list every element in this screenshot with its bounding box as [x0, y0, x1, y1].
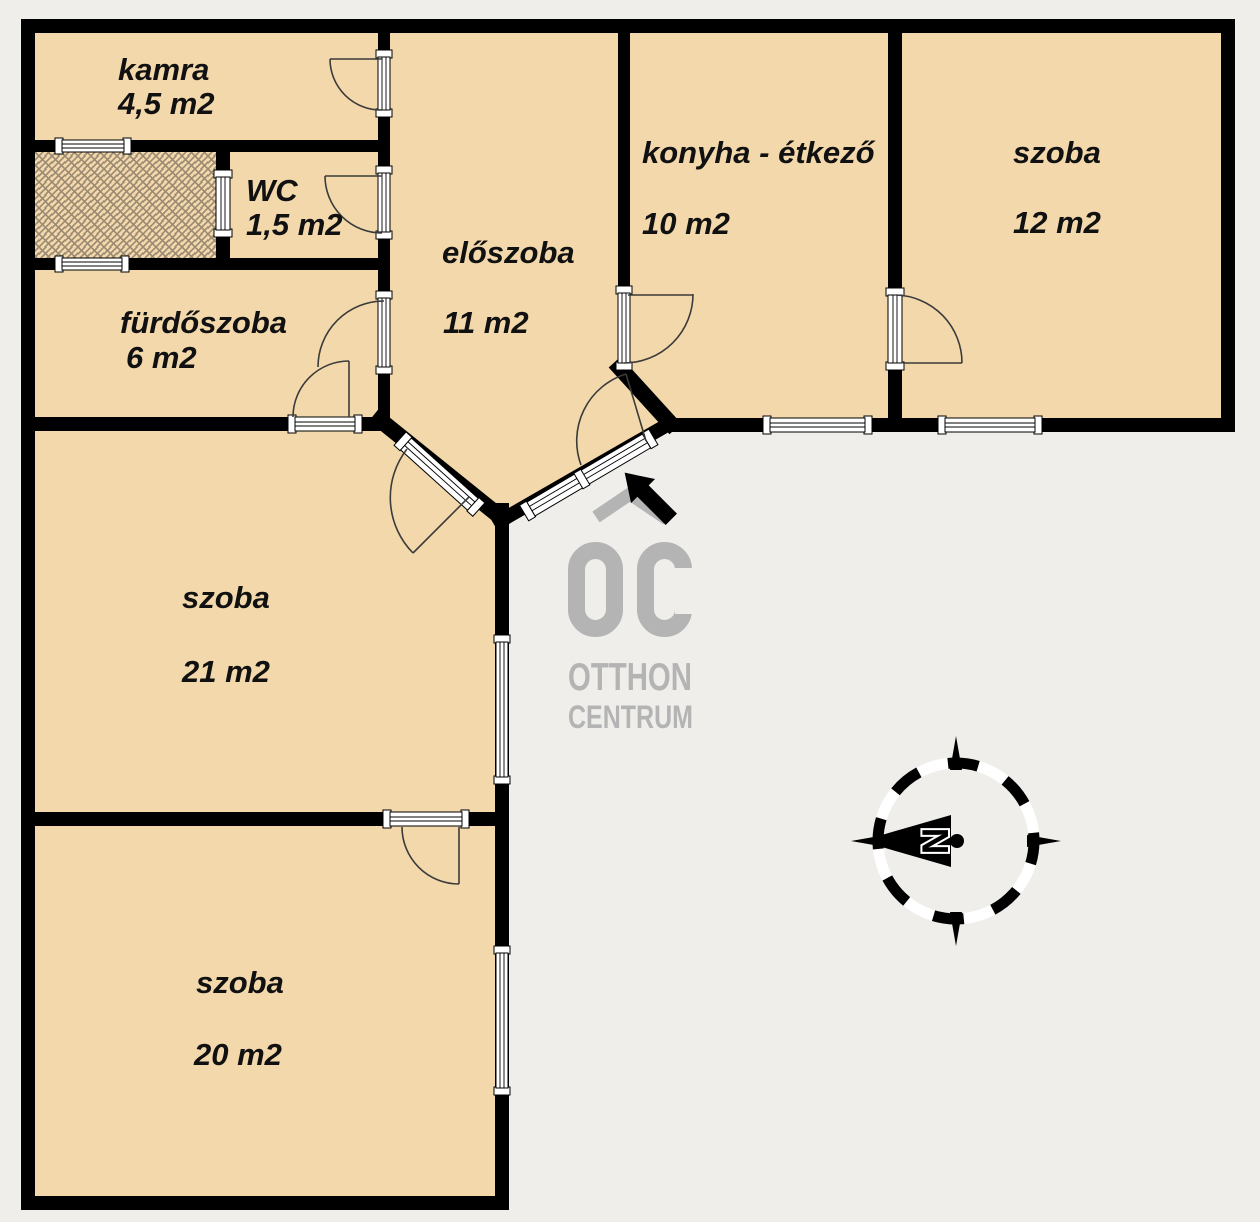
- area-szoba21: 21 m2: [181, 654, 270, 689]
- area-kamra: 4,5 m2: [117, 86, 215, 121]
- logo-word-centrum: CENTRUM: [568, 699, 693, 735]
- area-eloszoba: 11 m2: [443, 305, 529, 340]
- szoba21-window: [494, 635, 510, 784]
- label-konyha: konyha - étkező: [642, 135, 876, 170]
- kamra-door-jamb: [376, 50, 392, 117]
- logo-word-otthon: OTTHON: [568, 656, 692, 699]
- left-band-floor: [35, 418, 495, 1196]
- area-szoba12: 12 m2: [1013, 205, 1101, 240]
- szoba12-window: [938, 416, 1042, 434]
- wc-shaft-window: [214, 170, 232, 237]
- furdoszoba-door-jamb: [376, 291, 392, 374]
- area-konyha: 10 m2: [642, 206, 730, 241]
- label-szoba12: szoba: [1013, 135, 1101, 170]
- szoba20-window: [494, 946, 510, 1095]
- label-kamra: kamra: [118, 52, 209, 87]
- area-wc: 1,5 m2: [246, 207, 343, 242]
- furdoszoba-shaft-window: [55, 256, 129, 272]
- label-eloszoba: előszoba: [442, 235, 575, 270]
- floor-plan-drawing: kamra 4,5 m2 WC 1,5 m2 fürdőszoba 6 m2 e…: [0, 0, 1260, 1222]
- label-szoba20: szoba: [196, 965, 284, 1000]
- konyha-window: [763, 416, 872, 434]
- area-szoba20: 20 m2: [193, 1037, 282, 1072]
- szoba20-door: [383, 810, 469, 828]
- label-furdoszoba: fürdőszoba: [120, 305, 287, 340]
- kamra-shaft-window: [55, 138, 131, 154]
- light-shaft-hatch: [35, 150, 216, 260]
- konyha-door-jamb: [616, 286, 632, 370]
- furdoszoba-szoba21-door: [288, 415, 362, 433]
- label-szoba21: szoba: [182, 580, 270, 615]
- szoba12-door-jamb: [886, 288, 904, 370]
- area-furdoszoba: 6 m2: [126, 340, 197, 375]
- compass-north-label: N: [915, 828, 956, 855]
- wc-door-jamb: [376, 166, 392, 239]
- floor-plan-page: kamra 4,5 m2 WC 1,5 m2 fürdőszoba 6 m2 e…: [0, 0, 1260, 1222]
- label-wc: WC: [246, 173, 298, 208]
